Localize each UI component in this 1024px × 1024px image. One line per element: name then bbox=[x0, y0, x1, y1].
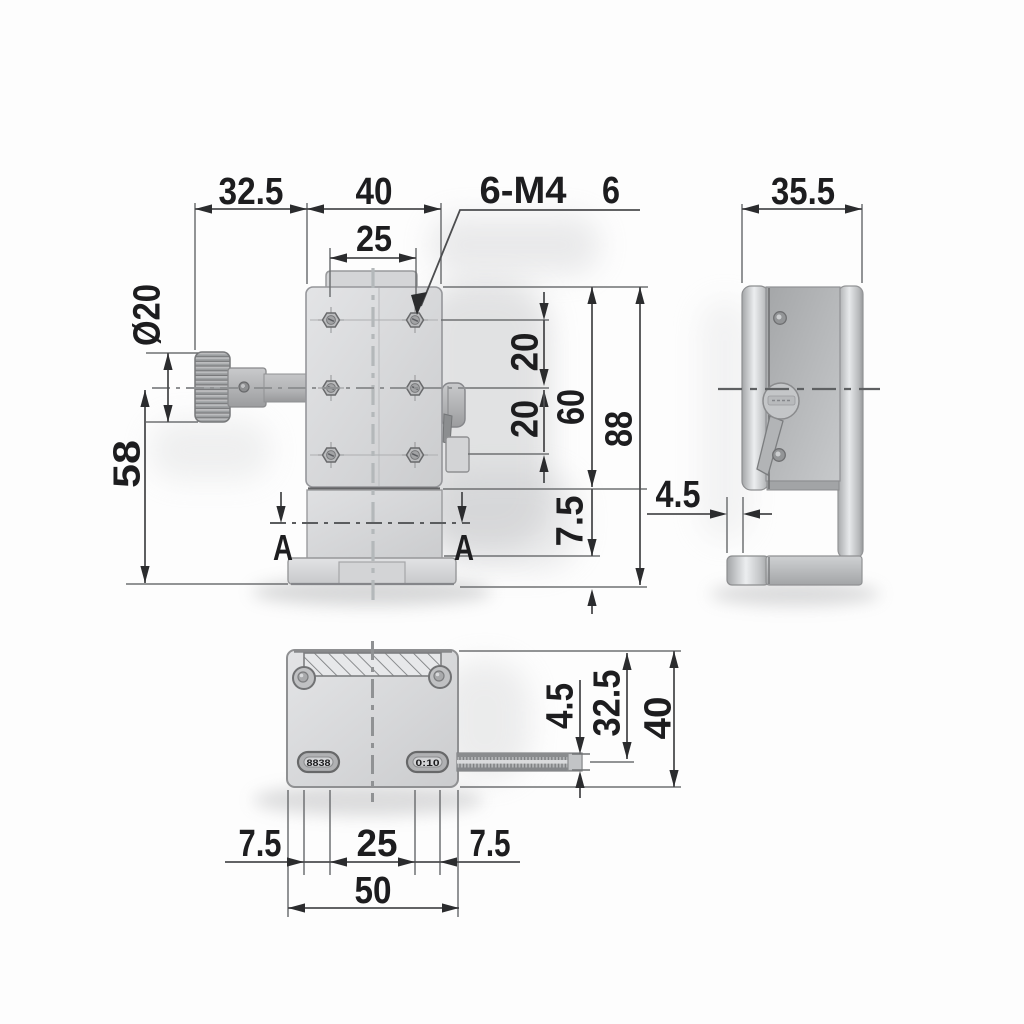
svg-text:7.5: 7.5 bbox=[550, 496, 592, 547]
svg-text:50: 50 bbox=[355, 870, 392, 912]
svg-text:7.5: 7.5 bbox=[239, 823, 282, 865]
svg-text:88: 88 bbox=[599, 411, 641, 447]
svg-text:32.5: 32.5 bbox=[587, 670, 629, 737]
svg-text:8838: 8838 bbox=[307, 758, 331, 769]
svg-text:40: 40 bbox=[356, 171, 393, 213]
svg-text:6: 6 bbox=[602, 170, 620, 212]
svg-text:A: A bbox=[273, 527, 293, 568]
svg-text:4.5: 4.5 bbox=[656, 474, 701, 516]
svg-text:35.5: 35.5 bbox=[771, 171, 835, 213]
svg-text:0:10: 0:10 bbox=[416, 758, 440, 769]
svg-text:25: 25 bbox=[357, 823, 398, 865]
svg-text:40: 40 bbox=[638, 697, 680, 740]
svg-text:6-M4: 6-M4 bbox=[480, 170, 567, 212]
svg-text:25: 25 bbox=[356, 218, 392, 259]
svg-text:20: 20 bbox=[505, 400, 547, 438]
svg-text:A: A bbox=[454, 527, 474, 568]
svg-text:7.5: 7.5 bbox=[470, 823, 511, 865]
svg-text:4.5: 4.5 bbox=[540, 683, 582, 729]
svg-text:32.5: 32.5 bbox=[219, 171, 284, 213]
svg-text:Ø20: Ø20 bbox=[127, 284, 169, 346]
svg-text:20: 20 bbox=[505, 333, 547, 372]
svg-text:58: 58 bbox=[107, 440, 149, 488]
svg-text:60: 60 bbox=[551, 389, 593, 425]
